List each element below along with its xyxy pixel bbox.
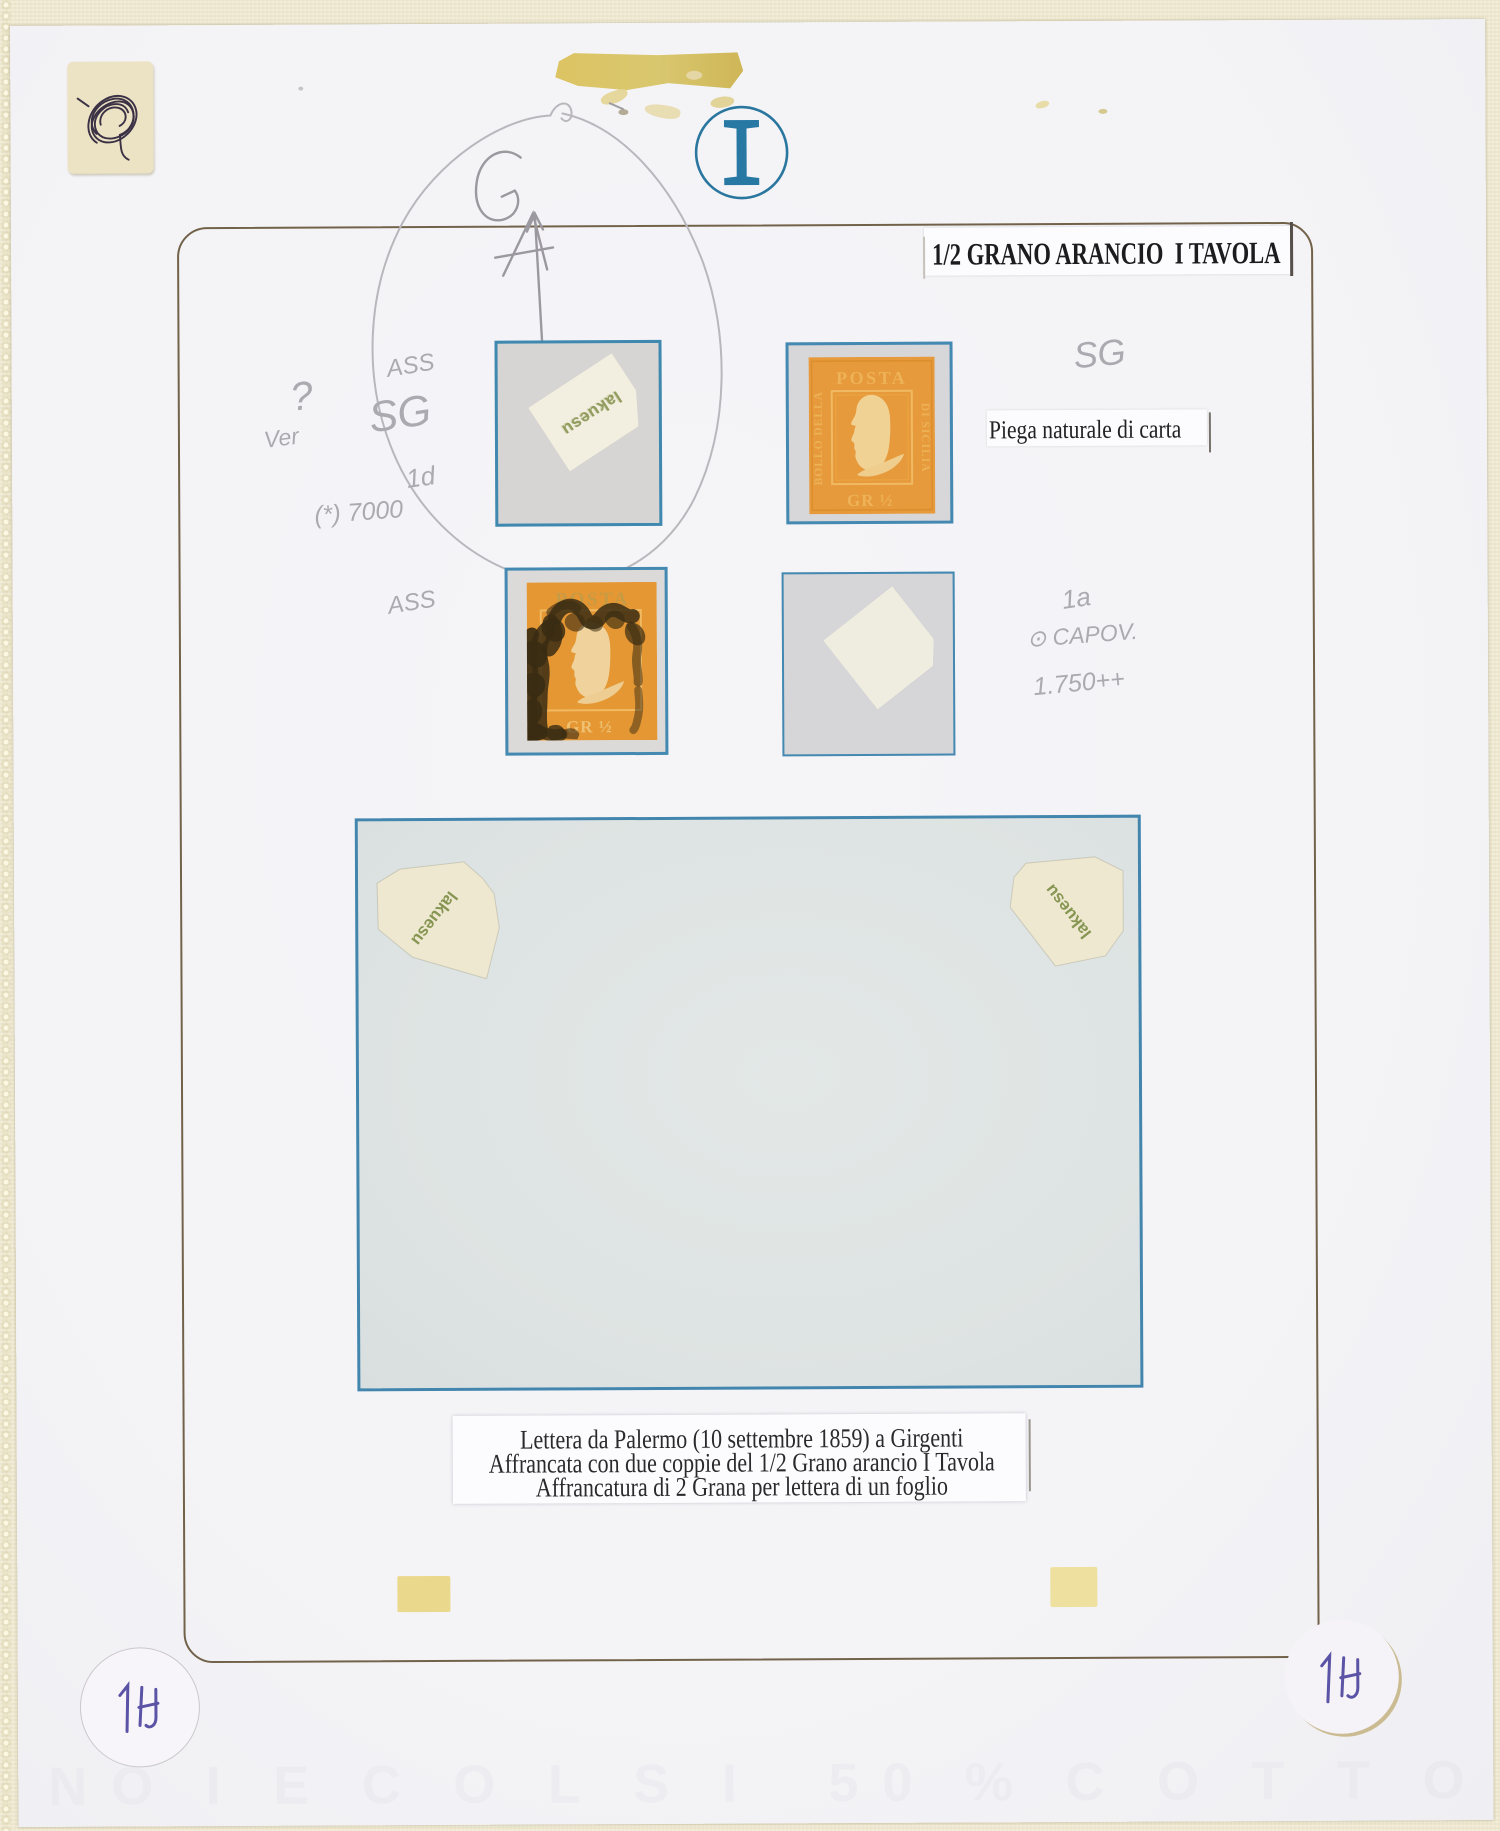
svg-text:DI SICILIA: DI SICILIA	[919, 403, 931, 473]
svg-text:POSTA: POSTA	[836, 368, 907, 388]
svg-text:BOLLO DELLA: BOLLO DELLA	[813, 391, 825, 485]
svg-text:GR ½: GR ½	[847, 491, 894, 510]
